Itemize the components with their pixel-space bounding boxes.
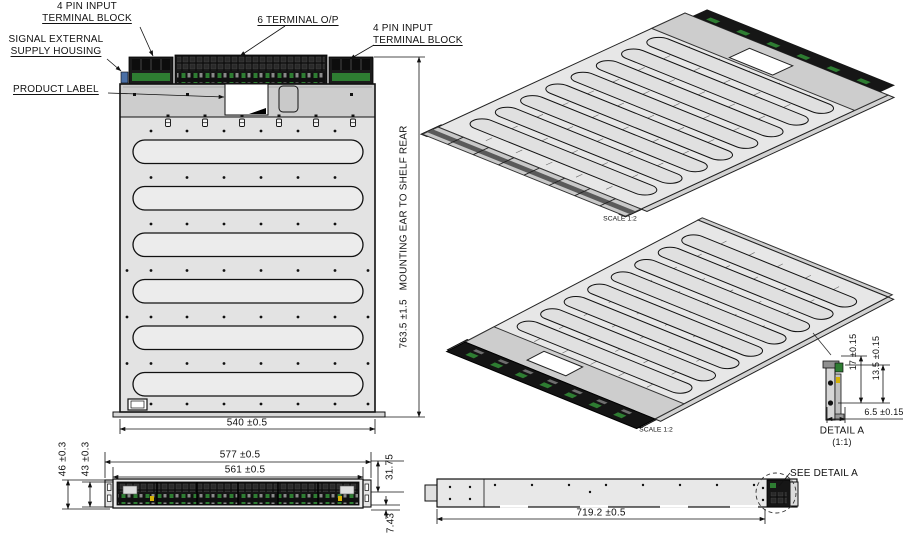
drawing-linework [0, 0, 905, 540]
iso-top-scale-label: SCALE 1:2 [603, 216, 637, 223]
detail-green-terminal [835, 363, 843, 372]
callout-product-label: PRODUCT LABEL [13, 84, 99, 96]
engineering-drawing-sheet: 4 PIN INPUT TERMINAL BLOCK 6 TERMINAL O/… [0, 0, 905, 540]
callout-see-detail-a: SEE DETAIL A [790, 468, 858, 480]
plan-terminal-band [121, 55, 373, 85]
side-rail [437, 479, 797, 507]
dim-front-right-lower: 7.43 [386, 513, 397, 533]
dim-detail-height-outer: 17 ±0.15 [848, 334, 858, 371]
signal-supply-housing [121, 72, 128, 83]
dim-plan-width: 540 ±0.5 [227, 418, 267, 429]
callout-signal-supply: SIGNAL EXTERNAL SUPPLY HOUSING [0, 34, 112, 58]
iso-view-top [421, 6, 905, 219]
plan-view [113, 55, 385, 417]
callout-pin4-right-line1: 4 PIN INPUT [373, 23, 471, 35]
dim-detail-height-inner: 13.5 ±0.15 [871, 336, 881, 380]
dim-front-inner-width: 561 ±0.5 [225, 465, 265, 476]
callout-pin4-left-line1: 4 PIN INPUT [38, 1, 136, 13]
front-view [62, 452, 404, 519]
dim-front-outer-height: 46 ±0.3 [58, 442, 69, 477]
callout-pin4-right: 4 PIN INPUT TERMINAL BLOCK [373, 23, 471, 47]
plan-cutout-rounded [279, 86, 298, 112]
iso-bottom-scale-label: SCALE 1:2 [639, 427, 673, 434]
callout-pin4-left: 4 PIN INPUT TERMINAL BLOCK [38, 1, 136, 25]
dim-side-length: 719.2 ±0.5 [576, 508, 625, 519]
dim-plan-depth: 763.5 ±1.5 MOUNTING EAR TO SHELF REAR [399, 126, 410, 349]
dim-front-right-upper: 31.75 [385, 454, 396, 480]
dim-front-inner-height: 43 ±0.3 [81, 442, 92, 477]
callout-signal-line1: SIGNAL EXTERNAL [0, 34, 112, 46]
callout-signal-line2: SUPPLY HOUSING [0, 46, 112, 58]
callout-pin4-right-line2: TERMINAL BLOCK [373, 35, 471, 47]
callout-6-terminal-op: 6 TERMINAL O/P [246, 15, 350, 27]
detail-a-scale: (1:1) [832, 437, 852, 447]
detail-a-title: DETAIL A [820, 426, 864, 437]
side-left-tab [425, 485, 437, 501]
callout-pin4-left-line2: TERMINAL BLOCK [38, 13, 136, 25]
dim-detail-width: 6.5 ±0.15 [864, 407, 903, 417]
dim-front-outer-width: 577 ±0.5 [220, 450, 260, 461]
